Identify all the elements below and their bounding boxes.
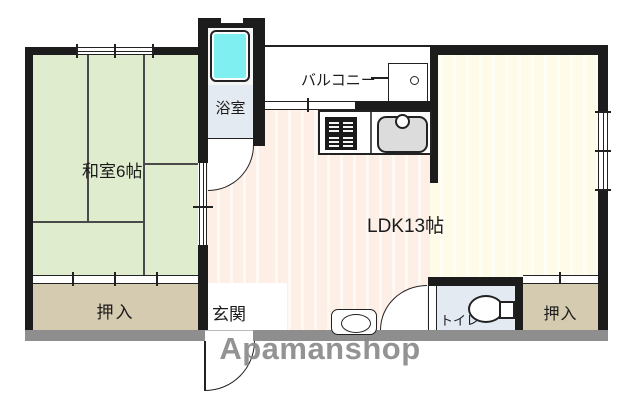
genkan-label: 玄関 bbox=[212, 300, 246, 325]
fusuma-tick bbox=[72, 272, 74, 286]
ldk-label: LDK13帖 bbox=[367, 211, 444, 238]
closet-left-label: 押入 bbox=[33, 298, 198, 323]
washitsu-sliding-door bbox=[199, 163, 207, 245]
tatami-line bbox=[143, 163, 198, 165]
tatami-line bbox=[33, 221, 143, 223]
fusuma-left bbox=[33, 275, 198, 284]
bathroom-label: 浴室 bbox=[208, 97, 253, 118]
window-tick bbox=[595, 111, 611, 113]
tatami-line bbox=[87, 55, 89, 222]
fusuma-tick bbox=[156, 272, 158, 286]
floor-plan: 和室6帖 浴室 バルコニー LDK13帖 押入 玄関 トイレ 押入 Apaman… bbox=[0, 0, 640, 412]
toilet-door bbox=[428, 286, 437, 330]
window-tick bbox=[114, 44, 116, 58]
window-tick bbox=[595, 189, 611, 191]
washitsu-label: 和室6帖 bbox=[82, 157, 142, 182]
balcony-label: バルコニー bbox=[301, 69, 376, 90]
wall-toilet-right bbox=[515, 286, 523, 330]
wall-living-top bbox=[430, 45, 608, 55]
faucet-icon bbox=[395, 114, 410, 129]
bathtub-icon bbox=[210, 30, 250, 82]
water-heater-icon bbox=[388, 63, 428, 103]
toilet-tank-icon bbox=[499, 301, 515, 319]
closet-right-label: 押入 bbox=[523, 300, 598, 324]
apamanshop-watermark: Apamanshop bbox=[0, 331, 640, 367]
stove-icon bbox=[325, 117, 357, 150]
tatami-line bbox=[143, 55, 145, 277]
wall-top bbox=[153, 47, 198, 55]
wall-left bbox=[25, 47, 33, 330]
sliding-door-tick bbox=[193, 206, 213, 208]
wall-top bbox=[25, 47, 77, 55]
wall-washitsu-right-upper bbox=[198, 18, 208, 163]
balcony-railing bbox=[263, 101, 355, 110]
water-heater-dial bbox=[410, 76, 419, 85]
wall-bathroom-right bbox=[253, 18, 265, 146]
window-tick bbox=[152, 44, 154, 58]
fusuma-right bbox=[523, 275, 598, 284]
wall-kitchen-top bbox=[355, 101, 432, 110]
wall-washitsu-right-lower bbox=[198, 245, 208, 330]
fusuma-tick bbox=[114, 272, 116, 286]
bathroom-vent bbox=[221, 18, 243, 24]
window-tick bbox=[595, 150, 611, 152]
wall-toilet-top bbox=[428, 277, 523, 286]
counter-divider bbox=[370, 112, 372, 153]
railing-tick bbox=[307, 98, 309, 112]
window-tick bbox=[76, 44, 78, 58]
balcony-edge bbox=[265, 45, 430, 47]
